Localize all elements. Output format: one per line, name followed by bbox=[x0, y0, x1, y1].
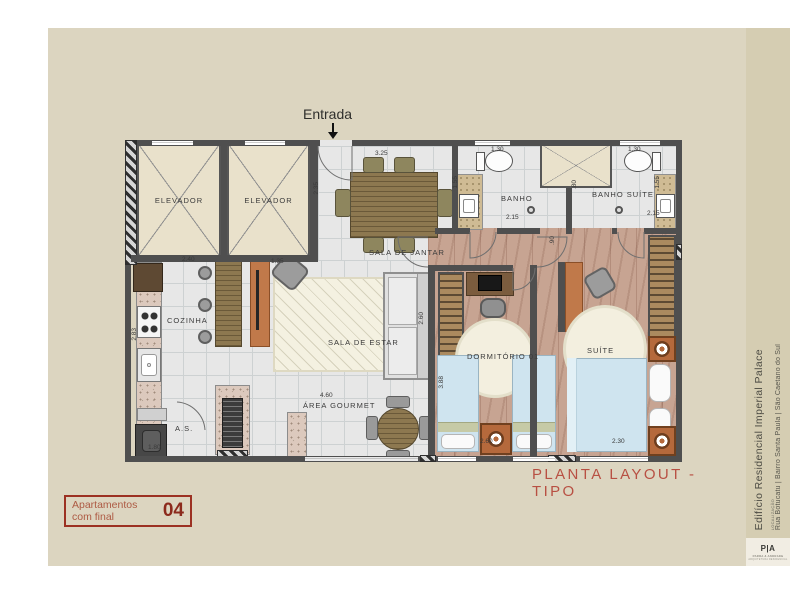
room-label-dining: SALA DE JANTAR bbox=[369, 248, 445, 257]
dimension: 1.80 bbox=[148, 444, 161, 451]
dimension: 2.83 bbox=[131, 328, 138, 341]
dimension: .90 bbox=[549, 236, 556, 245]
dimension: 1.30 bbox=[628, 146, 641, 153]
badge-number: 04 bbox=[163, 500, 184, 522]
dimension: 2.60 bbox=[418, 312, 425, 325]
dimension: 4.60 bbox=[320, 392, 333, 399]
room-label-gourmet: ÁREA GOURMET bbox=[303, 401, 375, 410]
floor-plan: ELEVADOR ELEVADOR bbox=[125, 140, 682, 462]
room-label-bathroom-suite: BANHO SUÍTE bbox=[592, 190, 654, 199]
room-label-bathroom: BANHO bbox=[501, 194, 533, 203]
dimension: 2.35 bbox=[313, 182, 320, 195]
dimension: 1.35 bbox=[271, 258, 284, 265]
dimension: 2.40 bbox=[182, 256, 195, 263]
dimension: 2.30 bbox=[612, 438, 625, 445]
dimension: 2.15 bbox=[506, 214, 519, 221]
entrance-label: Entrada bbox=[303, 106, 352, 122]
entrance-arrow-head-icon bbox=[328, 132, 338, 139]
info-sidebar: Edifício Residencial Imperial Palace LOC… bbox=[746, 28, 790, 566]
door-swing-arcs bbox=[125, 140, 682, 462]
building-name: Edifício Residencial Imperial Palace bbox=[753, 349, 765, 530]
board-background: Entrada bbox=[48, 28, 746, 566]
dimension: 2.15 bbox=[647, 210, 660, 217]
dimension: 3.25 bbox=[375, 150, 388, 157]
room-label-laundry: A.S. bbox=[175, 424, 193, 433]
entrance-arrow-icon bbox=[332, 123, 334, 132]
dimension: 3.88 bbox=[438, 376, 445, 389]
dimension: 1.55 bbox=[654, 176, 661, 189]
address-text: Rua Botucatu | Bairro Santa Paula | São … bbox=[775, 344, 782, 530]
logo-subtext: PARRA & ANDRADE bbox=[753, 554, 784, 558]
room-label-suite: SUÍTE bbox=[587, 346, 614, 355]
room-label-living: SALA DE ESTAR bbox=[328, 338, 399, 347]
badge-line1: Apartamentos bbox=[72, 499, 163, 511]
room-label-kitchen: COZINHA bbox=[167, 316, 208, 325]
architect-logo: P|A PARRA & ANDRADE ARQUITETURA RESIDENC… bbox=[746, 538, 790, 566]
apartment-number-badge: Apartamentos com final 04 bbox=[64, 495, 192, 527]
logo-tagline: ARQUITETURA RESIDENCIAL bbox=[748, 559, 787, 561]
logo-monogram: P|A bbox=[761, 544, 776, 553]
dimension: 1.30 bbox=[491, 146, 504, 153]
room-label-bedroom: DORMITÓRIO 01 bbox=[467, 352, 539, 361]
plan-title: PLANTA LAYOUT - TIPO bbox=[532, 466, 746, 500]
badge-line2: com final bbox=[72, 511, 163, 523]
presentation-slide: Entrada bbox=[0, 0, 800, 593]
badge-text: Apartamentos com final bbox=[72, 499, 163, 523]
dimension: 2.60 bbox=[480, 438, 493, 445]
dimension: 1.55 bbox=[452, 176, 459, 189]
dimension: .80 bbox=[571, 180, 578, 189]
